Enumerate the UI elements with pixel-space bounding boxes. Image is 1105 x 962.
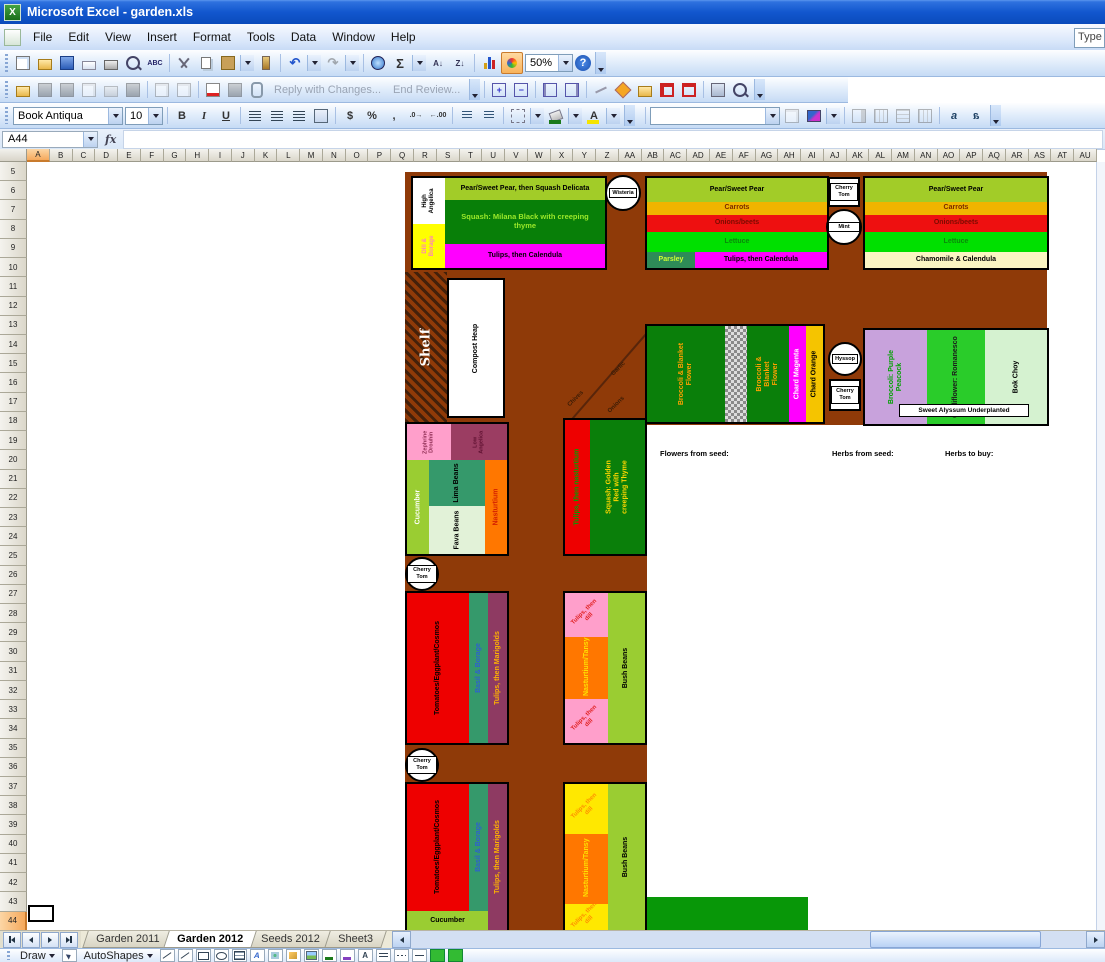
chart-type-icon[interactable] [804,106,824,126]
cell-tomatoes-1[interactable]: Tomatoes/Eggplant/Cosmos [407,593,469,743]
cell-broccoli-blanket-2[interactable]: Broccoli & Blanket Flower [747,326,789,422]
cell-checker-strip[interactable] [725,326,747,422]
delete-comment-icon[interactable] [123,80,143,100]
compost-heap[interactable]: Compost Heap [447,278,505,418]
formatting-chevron[interactable] [624,105,635,126]
cell-broccoli-blanket-1[interactable]: Broccoli & Blanket Flower [647,326,725,422]
row-header-6[interactable]: 6 [0,181,27,200]
cell-chard-magenta[interactable]: Chard Magenta [789,326,806,422]
row-header-34[interactable]: 34 [0,719,27,738]
column-header-m[interactable]: M [300,149,323,162]
cell-carrots-n[interactable]: Carrots [647,202,827,215]
last-sheet-button[interactable] [60,932,78,948]
review-toolbar-chevron[interactable] [469,79,480,100]
show-detail-icon[interactable]: + [489,80,509,100]
bed-middle-1: Tulips, then nasturtium Squash: Golden R… [563,418,647,556]
column-header-r[interactable]: R [414,149,437,162]
font-size-dropdown[interactable] [148,108,162,124]
worksheet-menu-icon[interactable] [4,29,21,46]
currency-icon[interactable]: $ [340,106,360,126]
zoom-dropdown[interactable] [558,55,572,71]
cell-chamomile-calendula[interactable]: Chamomile & Calendula [865,252,1047,268]
row-header-41[interactable]: 41 [0,854,27,873]
window-title: Microsoft Excel - garden.xls [27,5,193,19]
toolbar-grip-2[interactable] [5,81,8,99]
text-box-icon[interactable] [232,949,247,962]
cell-tomatoes-2[interactable]: Tomatoes/Eggplant/Cosmos [407,784,469,911]
line-color-icon[interactable] [340,949,355,962]
column-header-k[interactable]: K [255,149,278,162]
format-selected-icon[interactable] [782,106,802,126]
column-header-h[interactable]: H [186,149,209,162]
cell-basil-borage-2[interactable]: Basil & Borage [469,784,488,911]
row-header-22[interactable]: 22 [0,489,27,508]
font-name-dropdown[interactable] [108,108,122,124]
audit-toolbar-chevron[interactable] [754,79,765,100]
font-size-combobox[interactable]: 10 [125,107,163,125]
menu-view[interactable]: View [97,26,139,48]
insert-picture-icon[interactable] [304,949,319,962]
sort-ascending-icon[interactable]: A↓ [428,53,448,73]
column-header-d[interactable]: D [95,149,118,162]
row-header-13[interactable]: 13 [0,316,27,335]
cell-low-angelica[interactable]: Low Angelica [451,424,507,460]
cell-basil-borage-1[interactable]: Basil & Borage [469,593,488,743]
cell-tulips-marigolds-2[interactable]: Tulips, then Marigolds [488,784,507,931]
cell-cucumber-w2[interactable]: Cucumber [407,460,429,554]
prev-sheet-button[interactable] [22,932,40,948]
borders-icon[interactable] [508,106,528,126]
column-header-ai[interactable]: AI [801,149,824,162]
row-header-9[interactable]: 9 [0,239,27,258]
column-header-f[interactable]: F [141,149,164,162]
cell-tulips-dill-bottom-1[interactable]: Tulips, then dill [565,699,608,743]
cell-lima-beans[interactable]: Lima Beans [429,460,485,506]
end-review-button[interactable]: End Review... [388,84,465,96]
redo-dropdown[interactable] [345,55,359,71]
row-header-18[interactable]: 18 [0,412,27,431]
cell-carrots-ne[interactable]: Carrots [865,202,1047,215]
chart-toolbar-chevron[interactable] [990,105,1001,126]
drawing-toggle-icon[interactable] [501,52,523,74]
green-plot-bottom[interactable] [647,897,808,930]
column-header-c[interactable]: C [73,149,96,162]
column-header-ac[interactable]: AC [664,149,687,162]
note-herbs-to-buy[interactable]: Herbs to buy: [945,449,993,458]
green-swatch-icon-2[interactable] [448,949,463,962]
row-header-21[interactable]: 21 [0,470,27,489]
column-header-n[interactable]: N [323,149,346,162]
column-header-ah[interactable]: AH [778,149,801,162]
toolbar-grip[interactable] [5,54,8,72]
increase-decimal-icon[interactable]: .0→ [406,106,426,126]
row-header-35[interactable]: 35 [0,739,27,758]
scroll-right-button[interactable] [1086,931,1105,948]
row-header-28[interactable]: 28 [0,604,27,623]
cell-tulips-calendula-2[interactable]: Tulips, then Calendula [695,252,827,268]
tab-nav-buttons [0,931,81,948]
name-box-dropdown[interactable] [83,132,97,147]
underline-icon[interactable]: U [216,106,236,126]
data-table-icon[interactable] [871,106,891,126]
font-color-icon[interactable]: A [584,106,604,126]
font-color-icon-2[interactable]: A [358,949,373,962]
legend-icon[interactable] [849,106,869,126]
cell-pear-sweet-pear-ne[interactable]: Pear/Sweet Pear [865,178,1047,202]
cell-bush-beans-2[interactable]: Bush Beans [608,784,645,931]
save-version-icon[interactable] [225,80,245,100]
sheet-tab-row: Garden 2011Garden 2012Seeds 2012Sheet3 [0,930,1105,948]
edit-comment-icon[interactable] [79,80,99,100]
row-header-24[interactable]: 24 [0,527,27,546]
first-sheet-button[interactable] [3,932,21,948]
marker-wisteria[interactable]: Wisteria [605,175,641,211]
hide-detail-icon[interactable]: − [511,80,531,100]
toolbar-options-chevron[interactable] [595,52,606,74]
angle-counterclockwise-icon[interactable]: a [966,106,986,126]
row-header-44[interactable]: 44 [0,912,27,931]
sheet-tab-seeds-2012[interactable]: Seeds 2012 [248,931,334,948]
merge-center-icon[interactable] [311,106,331,126]
column-header-ad[interactable]: AD [687,149,710,162]
row-header-43[interactable]: 43 [0,892,27,911]
column-header-v[interactable]: V [505,149,528,162]
route-icon[interactable] [57,80,77,100]
menu-data[interactable]: Data [283,26,324,48]
row-header-32[interactable]: 32 [0,681,27,700]
chart-objects-combobox[interactable] [650,107,780,125]
magnifier-fx-icon[interactable] [730,80,750,100]
cell-nasturtium-tansy-1[interactable]: Nasturtium/Tansy [565,637,608,699]
row-header-23[interactable]: 23 [0,508,27,527]
vertical-scrollbar[interactable] [1096,162,1105,930]
column-header-ag[interactable]: AG [756,149,779,162]
copy-icon[interactable] [196,53,216,73]
decrease-decimal-icon[interactable]: ←.00 [428,106,448,126]
menu-window[interactable]: Window [324,26,383,48]
column-header-x[interactable]: X [551,149,574,162]
undo-icon[interactable]: ↶ [285,53,305,73]
cell-zephrine-drouhin[interactable]: Zephrine Drouhin [407,424,451,460]
redo-icon[interactable]: ↷ [323,53,343,73]
menu-insert[interactable]: Insert [139,26,185,48]
group-icon[interactable] [540,80,560,100]
row-header-30[interactable]: 30 [0,642,27,661]
sheet-tabs: Garden 2011Garden 2012Seeds 2012Sheet3 [81,931,384,948]
cell-sweet-alyssum-note[interactable]: Sweet Alyssum Underplanted [899,404,1029,417]
row-header-39[interactable]: 39 [0,815,27,834]
formula-input[interactable] [123,130,1103,149]
scroll-thumb[interactable] [870,931,1041,948]
decrease-indent-icon[interactable] [457,106,477,126]
cell-bush-beans-1[interactable]: Bush Beans [608,593,645,743]
line-style-icon[interactable] [376,949,391,962]
column-header-ao[interactable]: AO [938,149,961,162]
autoshapes-menu-button[interactable]: AutoShapes [80,950,157,962]
marker-cherry-tom-2[interactable]: Cherry Tom [829,379,861,411]
sheet-tab-garden-2012[interactable]: Garden 2012 [164,931,258,948]
row-header-25[interactable]: 25 [0,546,27,565]
column-header-s[interactable]: S [437,149,460,162]
select-all-corner[interactable] [0,149,27,162]
chart-objects-dropdown[interactable] [765,108,779,124]
row-header-37[interactable]: 37 [0,777,27,796]
excel-window: { "window": { "title": "Microsoft Excel … [0,0,1105,962]
cell-lettuce-ne[interactable]: Lettuce [865,232,1047,252]
drawbar-grip[interactable] [7,951,10,960]
note-herbs-from-seed[interactable]: Herbs from seed: [832,449,894,458]
align-right-icon[interactable] [289,106,309,126]
column-header-e[interactable]: E [118,149,141,162]
row-header-7[interactable]: 7 [0,200,27,219]
binoculars-table-icon[interactable] [708,80,728,100]
reply-with-changes-button[interactable]: Reply with Changes... [269,84,386,96]
cell-pear-squash-delicata[interactable]: Pear/Sweet Pear, then Squash Delicata [445,178,605,200]
column-header-aa[interactable]: AA [619,149,642,162]
bold-icon[interactable]: B [172,106,192,126]
note-flowers-from-seed[interactable]: Flowers from seed: [660,449,729,458]
row-header-31[interactable]: 31 [0,662,27,681]
row-header-8[interactable]: 8 [0,220,27,239]
cell-tulips-dill-top-1[interactable]: Tulips, then dill [565,593,608,637]
align-left-icon[interactable] [245,106,265,126]
row-header-19[interactable]: 19 [0,431,27,450]
cell-lettuce-n[interactable]: Lettuce [647,232,827,252]
column-header-q[interactable]: Q [391,149,414,162]
by-row-icon[interactable] [893,106,913,126]
column-header-a[interactable]: A [27,149,50,162]
sort-descending-icon[interactable]: Z↓ [450,53,470,73]
column-header-z[interactable]: Z [596,149,619,162]
column-header-am[interactable]: AM [892,149,915,162]
increase-indent-icon[interactable] [479,106,499,126]
horizontal-scrollbar[interactable] [392,931,1105,948]
print-icon[interactable] [101,53,121,73]
save-icon[interactable] [57,53,77,73]
rectangle-icon[interactable] [196,949,211,962]
error-checking-icon[interactable] [613,80,633,100]
cell-cucumber-band[interactable]: Cucumber [407,911,488,931]
cell-tulips-calendula-1[interactable]: Tulips, then Calendula [445,244,605,268]
menu-file[interactable]: File [25,26,60,48]
column-header-ar[interactable]: AR [1006,149,1029,162]
fill-color-icon-2[interactable] [322,949,337,962]
red-grid-icon[interactable] [657,80,677,100]
cell-high-angelica[interactable]: High Angelica [413,178,445,224]
fill-color-icon[interactable] [546,106,566,126]
menu-format[interactable]: Format [185,26,239,48]
column-header-p[interactable]: P [368,149,391,162]
arrow-style-icon[interactable] [412,949,427,962]
cell-tulips-dill-top-2[interactable]: Tulips, then dill [565,784,608,834]
oval-icon[interactable] [214,949,229,962]
trace-icon[interactable] [591,80,611,100]
marker-hyssop[interactable]: Hyssop [828,342,862,376]
name-box[interactable]: A44 [2,131,98,148]
prev-comment-icon[interactable] [152,80,172,100]
arrow-icon[interactable] [178,949,193,962]
cell-squash-milana[interactable]: Squash: Milana Black with creeping thyme [445,200,605,244]
column-header-af[interactable]: AF [733,149,756,162]
mail-icon[interactable] [79,53,99,73]
column-header-o[interactable]: O [346,149,369,162]
column-header-aj[interactable]: AJ [824,149,847,162]
cell-squash-golden[interactable]: Squash: Golden Red with creeping Thyme [590,420,645,554]
row-header-40[interactable]: 40 [0,835,27,854]
cell-onions-beets-ne[interactable]: Onions/beets [865,215,1047,232]
column-header-y[interactable]: Y [573,149,596,162]
cell-tulips-then-nasturtium[interactable]: Tulips, then nasturtium [565,420,590,554]
dash-style-icon[interactable] [394,949,409,962]
row-header-17[interactable]: 17 [0,393,27,412]
row-header-16[interactable]: 16 [0,373,27,392]
column-header-al[interactable]: AL [869,149,892,162]
chart-wizard-icon[interactable] [479,53,499,73]
open-icon[interactable] [35,53,55,73]
percent-icon[interactable]: % [362,106,382,126]
autosum-dropdown[interactable] [412,55,426,71]
next-comment-icon[interactable] [174,80,194,100]
sheet-tab-garden-2011[interactable]: Garden 2011 [82,931,173,948]
row-header-38[interactable]: 38 [0,796,27,815]
scroll-track[interactable] [411,931,1086,948]
cut-icon[interactable] [174,53,194,73]
row-header-11[interactable]: 11 [0,277,27,296]
next-sheet-button[interactable] [41,932,59,948]
wordart-icon[interactable]: A [250,949,265,962]
fill-color-dropdown[interactable] [568,108,582,124]
cell-tulips-dill-bottom-2[interactable]: Tulips, then dill [565,904,608,931]
row-header-29[interactable]: 29 [0,623,27,642]
borders-dropdown[interactable] [530,108,544,124]
paste-icon[interactable] [218,53,238,73]
comma-style-icon[interactable]: , [384,106,404,126]
clip-art-icon[interactable] [286,949,301,962]
cell-fava-beans[interactable]: Fava Beans [429,506,485,554]
column-header-j[interactable]: J [232,149,255,162]
row-header-33[interactable]: 33 [0,700,27,719]
cell-pear-sweet-pear-n[interactable]: Pear/Sweet Pear [647,178,827,202]
align-center-icon[interactable] [267,106,287,126]
spelling-icon[interactable]: ABC [145,53,165,73]
undo-dropdown[interactable] [307,55,321,71]
by-column-icon[interactable] [915,106,935,126]
row-header-26[interactable]: 26 [0,566,27,585]
column-header-aq[interactable]: AQ [983,149,1006,162]
shelf-area[interactable]: Shelf [405,272,447,422]
format-painter-icon[interactable] [256,53,276,73]
column-header-ap[interactable]: AP [960,149,983,162]
menu-help[interactable]: Help [383,26,424,48]
cell-dill-borage[interactable]: Dill & Borage [413,224,445,268]
new-document-icon[interactable] [13,53,33,73]
marker-cherry-tom-4[interactable]: Cherry Tom [405,748,439,782]
row-header-10[interactable]: 10 [0,258,27,277]
column-header-ae[interactable]: AE [710,149,733,162]
column-header-w[interactable]: W [528,149,551,162]
column-header-g[interactable]: G [164,149,187,162]
green-swatch-icon-1[interactable] [430,949,445,962]
diagram-icon[interactable] [268,949,283,962]
italic-icon[interactable]: I [194,106,214,126]
insert-function-icon[interactable]: fx [98,133,123,146]
paste-dropdown[interactable] [240,55,254,71]
angle-clockwise-icon[interactable]: a [944,106,964,126]
bed-north: Pear/Sweet Pear Carrots Onions/beets Let… [645,176,829,270]
new-workbook-icon[interactable] [13,80,33,100]
line-icon[interactable] [160,949,175,962]
column-header-t[interactable]: T [460,149,483,162]
ungroup-icon[interactable] [562,80,582,100]
column-header-au[interactable]: AU [1074,149,1097,162]
send-icon[interactable] [35,80,55,100]
bed-middle-2: Tulips, then dill Nasturtium/Tansy Tulip… [563,591,647,745]
column-header-ab[interactable]: AB [642,149,665,162]
attach-icon[interactable] [247,80,267,100]
row-header-36[interactable]: 36 [0,758,27,777]
cell-chard-orange[interactable]: Chard Orange [806,326,823,422]
font-color-dropdown[interactable] [606,108,620,124]
column-header-an[interactable]: AN [915,149,938,162]
scroll-left-button[interactable] [392,931,411,948]
row-header-27[interactable]: 27 [0,585,27,604]
cell-tulips-marigolds-1[interactable]: Tulips, then Marigolds [488,593,507,743]
column-header-b[interactable]: B [50,149,73,162]
column-header-l[interactable]: L [277,149,300,162]
marker-cherry-tom-1[interactable]: Cherry Tom [828,177,860,207]
hyperlink-icon[interactable] [368,53,388,73]
marker-cherry-tom-3[interactable]: Cherry Tom [405,557,439,591]
column-header-u[interactable]: U [482,149,505,162]
row-header-14[interactable]: 14 [0,335,27,354]
font-name-combobox[interactable]: Book Antiqua [13,107,123,125]
selected-cell-a44[interactable] [28,905,54,922]
row-header-42[interactable]: 42 [0,873,27,892]
name-box-value: A44 [8,133,28,145]
print-preview-icon[interactable] [123,53,143,73]
row-header-15[interactable]: 15 [0,354,27,373]
help-icon[interactable]: ? [575,55,591,71]
select-objects-icon[interactable] [62,949,77,962]
chart-type-dropdown[interactable] [826,108,840,124]
column-header-i[interactable]: I [209,149,232,162]
track-changes-icon[interactable] [203,80,223,100]
show-comments-icon[interactable] [101,80,121,100]
column-header-ak[interactable]: AK [847,149,870,162]
row-header-20[interactable]: 20 [0,450,27,469]
row-header-5[interactable]: 5 [0,162,27,181]
zoom-combobox[interactable]: 50% [525,54,573,72]
autosum-icon[interactable]: Σ [390,53,410,73]
cell-parsley[interactable]: Parsley [647,252,695,268]
type-question-text: Type [1078,31,1102,43]
row-header-12[interactable]: 12 [0,297,27,316]
menu-tools[interactable]: Tools [239,26,283,48]
marker-mint[interactable]: Mint [826,209,862,245]
menu-edit[interactable]: Edit [60,26,97,48]
cell-onions-beets-n[interactable]: Onions/beets [647,215,827,232]
toolbar-grip-3[interactable] [5,107,8,125]
type-question-box[interactable]: Type [1074,28,1105,48]
draw-menu-button[interactable]: Draw [16,950,59,962]
column-header-as[interactable]: AS [1029,149,1052,162]
sheet-tab-sheet3[interactable]: Sheet3 [324,931,386,948]
cell-nasturtium-tansy-2[interactable]: Nasturtium/Tansy [565,834,608,904]
red-grid-add-icon[interactable] [679,80,699,100]
column-header-at[interactable]: AT [1051,149,1074,162]
folder-icon[interactable] [635,80,655,100]
cell-nasturtium-col[interactable]: Nasturtium [485,460,507,554]
